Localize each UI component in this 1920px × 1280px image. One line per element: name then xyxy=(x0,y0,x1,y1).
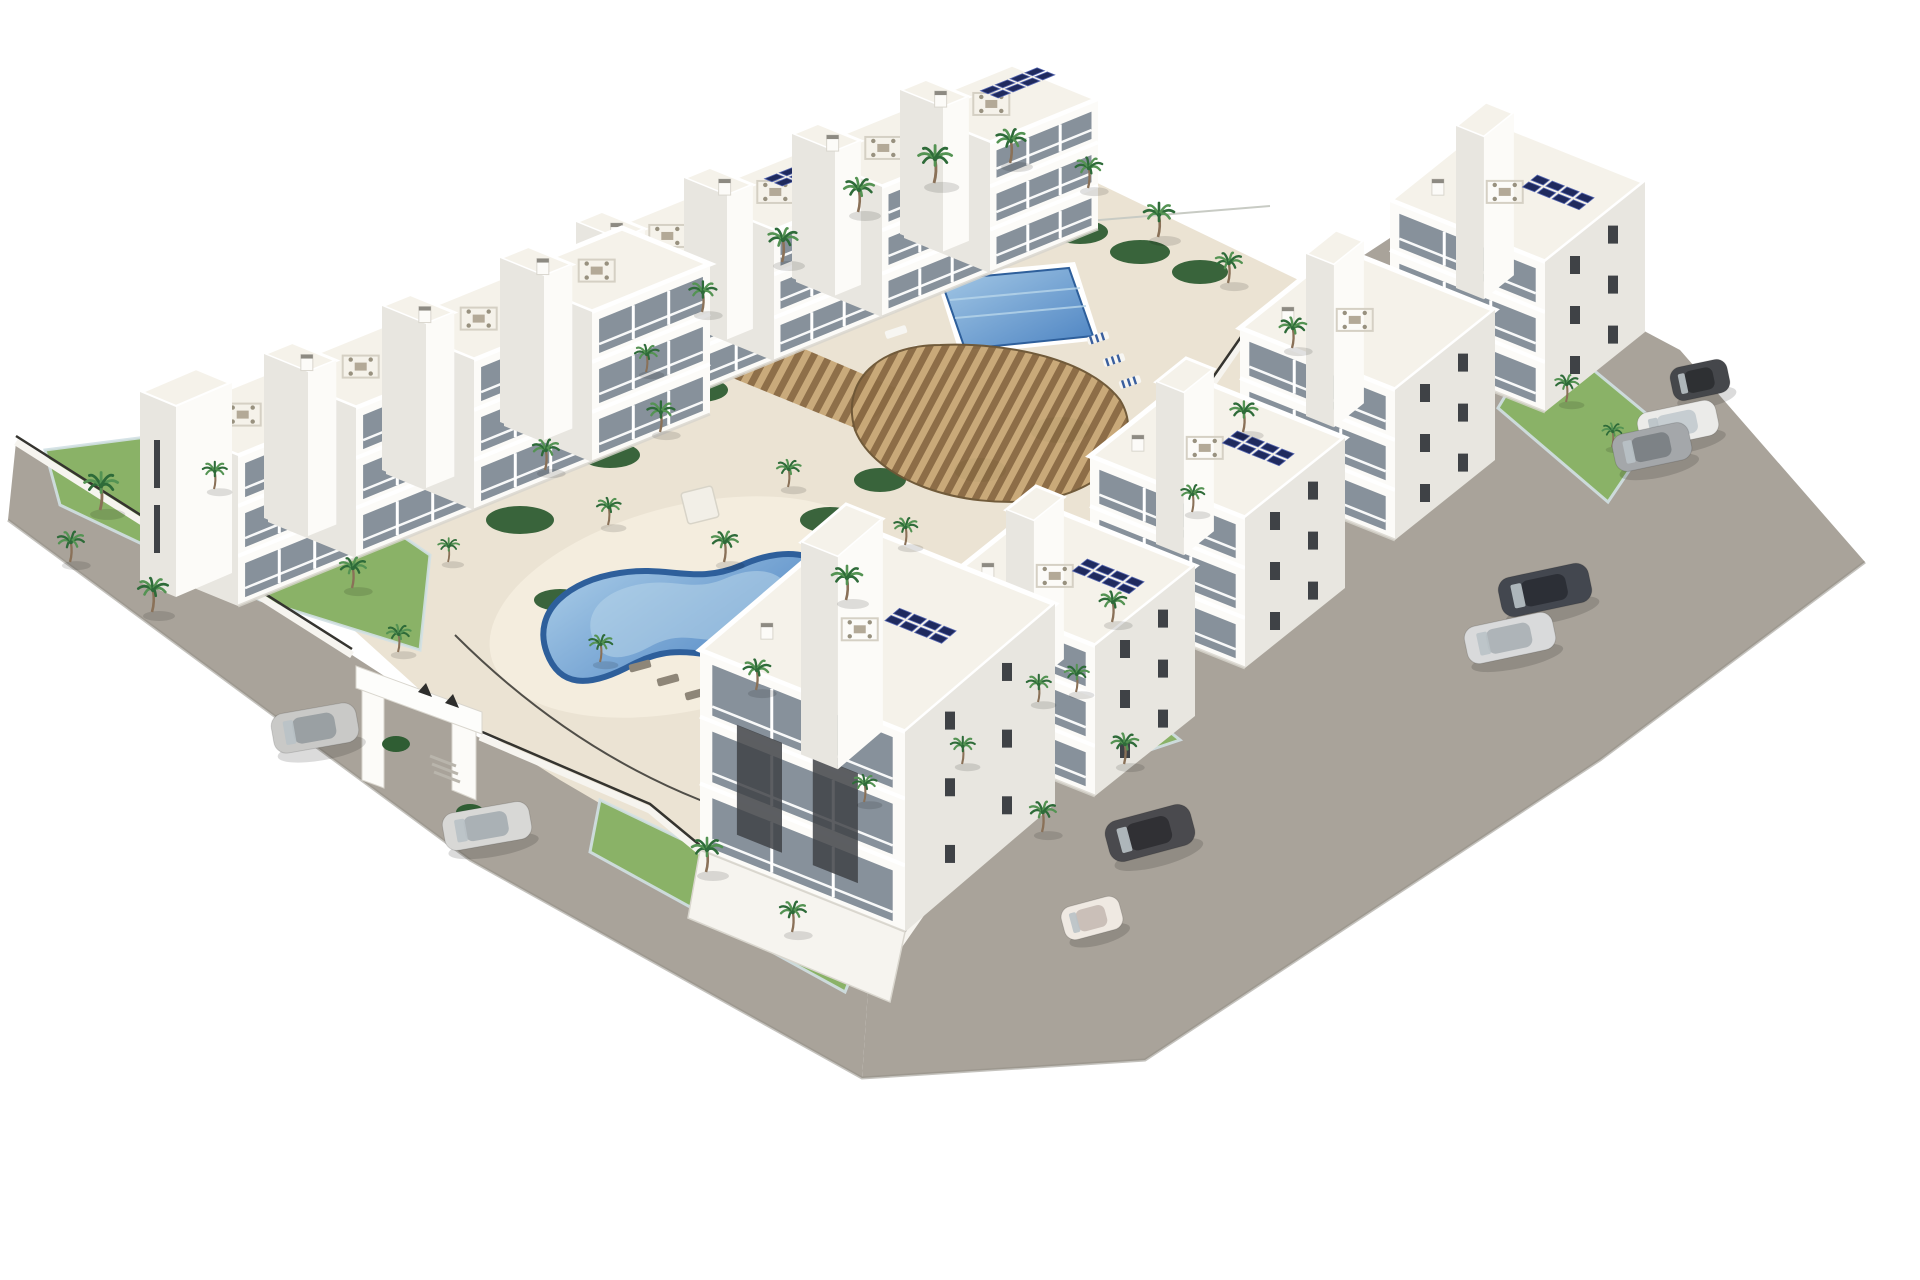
window-slit xyxy=(154,440,160,488)
window xyxy=(1608,226,1618,244)
chimney xyxy=(719,179,731,195)
window xyxy=(1608,326,1618,344)
stair-tower-side xyxy=(500,258,544,440)
stair-tower-side xyxy=(801,542,838,769)
stair-tower-front xyxy=(426,313,454,489)
stair-tower-side xyxy=(792,134,835,296)
window xyxy=(1002,663,1012,681)
window xyxy=(1270,562,1280,580)
window xyxy=(1158,660,1168,678)
window xyxy=(945,778,955,796)
chimney xyxy=(419,307,431,323)
window xyxy=(1570,306,1580,324)
gate-pillar-left xyxy=(362,682,384,788)
window xyxy=(1570,256,1580,274)
chimney xyxy=(537,259,549,275)
chimney xyxy=(827,135,839,151)
window xyxy=(1420,484,1430,502)
stair-tower-side xyxy=(1156,382,1184,555)
window xyxy=(1270,512,1280,530)
window xyxy=(1158,710,1168,728)
parasol xyxy=(681,486,720,525)
tower-side xyxy=(140,392,176,597)
stair-tower-front xyxy=(1184,369,1214,555)
window xyxy=(945,712,955,730)
window xyxy=(1458,454,1468,472)
window xyxy=(1458,354,1468,372)
stair-tower-front xyxy=(308,361,336,537)
window xyxy=(1570,356,1580,374)
window-slit xyxy=(154,505,160,553)
stair-tower-front xyxy=(1484,113,1514,299)
window xyxy=(1308,532,1318,550)
stair-tower-front xyxy=(727,185,753,340)
stair-tower-front xyxy=(943,97,969,252)
window xyxy=(1308,582,1318,600)
window xyxy=(1608,276,1618,294)
architectural-render xyxy=(0,0,1920,1280)
stair-tower-side xyxy=(264,354,308,536)
chimney xyxy=(301,355,313,371)
apartment-block xyxy=(900,64,1098,273)
window xyxy=(945,845,955,863)
window-band xyxy=(737,725,782,853)
window xyxy=(1002,730,1012,748)
window-band xyxy=(813,755,858,883)
chimney xyxy=(1132,435,1144,451)
window xyxy=(1120,690,1130,708)
window xyxy=(1458,404,1468,422)
stair-tower-front xyxy=(544,265,572,441)
stair-tower-side xyxy=(382,306,426,488)
shrub xyxy=(1172,260,1228,284)
chimney xyxy=(1432,179,1444,195)
chimney xyxy=(935,91,947,107)
stair-tower-side xyxy=(1306,254,1334,427)
stair-tower-front xyxy=(838,519,883,769)
render-canvas xyxy=(0,0,1920,1280)
stair-tower-front xyxy=(1334,241,1364,427)
window xyxy=(1002,796,1012,814)
window xyxy=(1420,434,1430,452)
window xyxy=(1308,482,1318,500)
stair-tower-side xyxy=(1456,126,1484,299)
apartment-block xyxy=(500,228,710,462)
window xyxy=(1158,610,1168,628)
window xyxy=(1120,640,1130,658)
window xyxy=(1420,384,1430,402)
window xyxy=(1270,612,1280,630)
chimney xyxy=(761,623,773,639)
shrub xyxy=(486,506,554,534)
gate-planter xyxy=(382,736,410,752)
west-gable-tower xyxy=(140,368,232,597)
